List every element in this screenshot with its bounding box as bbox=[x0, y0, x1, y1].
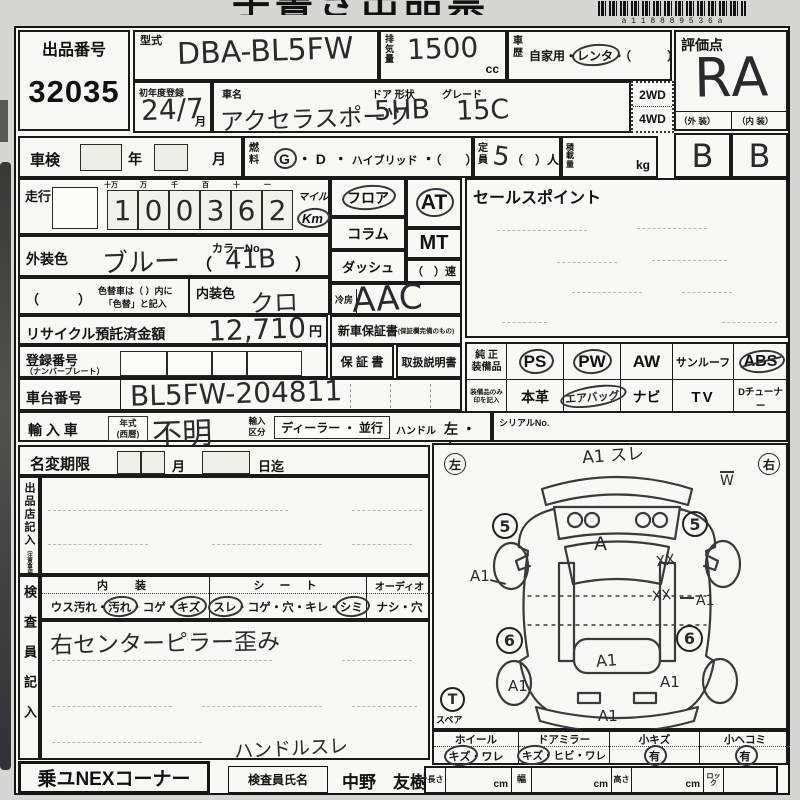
auction-sheet-scan: 手書き出品票 a 1 1 8 8 8 9 5 3 6 a 出品番号 32035 … bbox=[0, 0, 800, 800]
digit-header: 十 bbox=[233, 182, 240, 189]
small-scratch-value-wrap: 有 bbox=[610, 747, 699, 764]
damage-rear-right: A1 bbox=[660, 673, 680, 691]
width-cell: cm bbox=[532, 768, 612, 792]
odometer-label: 走行 bbox=[25, 190, 51, 204]
mirror-col: ドアミラー キズ・ヒビ・ワレ bbox=[519, 732, 610, 763]
guide-line bbox=[390, 384, 391, 408]
fuel-options: G ・D ・ハイブリッド ・（ ） bbox=[273, 149, 477, 169]
interior-header: 内 装 bbox=[42, 577, 209, 594]
first-registration-box: 初年度登録 24/7 月 bbox=[133, 81, 212, 133]
rename-month-cell bbox=[117, 451, 141, 474]
model-code-label: 型式 bbox=[140, 36, 162, 48]
color-no-paren: （ bbox=[196, 251, 212, 275]
digit-header: 十万 bbox=[104, 182, 118, 189]
damage-rear-bumper: A1 bbox=[598, 707, 618, 725]
wheel-mark-front-left: 5 bbox=[492, 513, 518, 539]
audio-col: オーディオ ナシ・穴 bbox=[367, 577, 432, 618]
registration-cell bbox=[120, 351, 167, 376]
digit-header: 百 bbox=[202, 182, 209, 189]
corner-box: 乗ユNEXコーナー bbox=[18, 761, 210, 794]
model-code-box: 型式 DBA-BL5FW bbox=[133, 30, 379, 81]
damage-front: A1 スレ bbox=[581, 439, 644, 468]
small-dent-col: 小ヘコミ 有 bbox=[700, 732, 790, 763]
new-car-warranty-label: 新車保証書 bbox=[338, 322, 398, 339]
pen-arrow bbox=[680, 597, 694, 599]
equip-sunroof: サンルーフ bbox=[676, 354, 730, 370]
equipment-table: 純 正装備品 装備品のみ印を記入 PS PW AW サンルーフ ABS 本革 エ… bbox=[465, 342, 788, 414]
mirror-options: キズ・ヒビ・ワレ bbox=[519, 747, 609, 764]
auction-number-box: 出品番号 32035 bbox=[18, 30, 130, 131]
odometer-digit: 6 bbox=[238, 194, 256, 227]
equip-pw: PW bbox=[578, 352, 605, 372]
wheel-mark-rear-left: 6 bbox=[496, 627, 523, 654]
rule-line bbox=[342, 660, 412, 661]
displacement-value: 1500 bbox=[406, 31, 478, 66]
lock-cell bbox=[724, 768, 776, 792]
displacement-box: 排気量 1500 cc bbox=[379, 30, 507, 81]
at-option: AT bbox=[421, 191, 447, 215]
car-name-box: 車名 ドア 形状 グレード アクセラスポーツ 5HB 15C bbox=[212, 81, 631, 133]
seller-section-label-box: 出品店記入 （注意事項） bbox=[18, 476, 40, 575]
serial-box: シリアルNo. bbox=[492, 411, 788, 442]
equip-abs: ABS bbox=[744, 353, 778, 371]
sales-point-box: セールスポイント bbox=[465, 178, 788, 338]
equip-airbag: エアバッグ bbox=[564, 387, 620, 407]
load-unit: kg bbox=[636, 158, 650, 172]
import-box: 輸 入 車 年式(西暦) 不明 輸入区分 ディーラー ・ 並行 ハンドル 左 ・… bbox=[18, 411, 492, 442]
damage-xx-1: XX bbox=[655, 552, 676, 571]
equip-leather: 本革 bbox=[521, 387, 549, 407]
color-change-paren: （ ） bbox=[26, 289, 91, 308]
wheel-header: ホイール bbox=[434, 732, 518, 747]
equip-ps: PS bbox=[524, 352, 547, 372]
exterior-grade-value: B bbox=[692, 137, 714, 175]
rename-month-cell bbox=[141, 451, 165, 474]
rename-label: 名変期限 bbox=[30, 453, 90, 474]
small-scratch-value: 有 bbox=[649, 748, 660, 764]
displacement-unit: cc bbox=[486, 62, 499, 76]
odometer-digit: 1 bbox=[114, 194, 132, 227]
color-no-paren: ） bbox=[295, 251, 311, 275]
rule-line bbox=[52, 706, 172, 707]
equip-aw: AW bbox=[633, 352, 660, 372]
load-label: 積載量 bbox=[566, 144, 576, 169]
spare-label: スペア bbox=[436, 713, 462, 726]
wheel-mark-rear-right: 6 bbox=[676, 625, 703, 652]
auction-number-label: 出品番号 bbox=[20, 36, 128, 60]
exterior-grade-box: B bbox=[674, 133, 731, 178]
spare-tire-mark: T bbox=[440, 687, 465, 712]
shift-dash: ダッシュ bbox=[342, 257, 394, 276]
mt-cell: MT bbox=[406, 228, 462, 259]
damage-w-mark: W bbox=[720, 471, 734, 489]
rule-line bbox=[352, 544, 412, 545]
drive-4wd: 4WD bbox=[633, 107, 672, 131]
damage-rear-left: A1 bbox=[508, 677, 528, 695]
fuel-label: 燃料 bbox=[249, 143, 260, 167]
damage-right-side: A1 bbox=[696, 593, 714, 609]
inspector-name-label: 検査員氏名 bbox=[248, 771, 308, 788]
car-history-options: 自家用・レンタ・（ ） bbox=[529, 47, 679, 64]
odometer-digit: 0 bbox=[176, 194, 194, 227]
car-history-label: 車歴 bbox=[513, 36, 524, 59]
mirror-kizu: キズ bbox=[522, 748, 543, 763]
import-label: 輸 入 車 bbox=[28, 420, 78, 440]
seat-opt-sure: スレ bbox=[213, 599, 236, 615]
recycle-unit: 円 bbox=[309, 321, 322, 340]
exterior-grade-label: （外 装） bbox=[676, 111, 732, 129]
handle-label: ハンドル bbox=[396, 422, 436, 437]
registration-box: 登録番号 （ナンバープレート） bbox=[18, 345, 328, 378]
fuel-box: 燃料 G ・D ・ハイブリッド ・（ ） bbox=[243, 136, 473, 178]
interior-grade-label: （内 装） bbox=[732, 111, 786, 129]
color-no-value: 41B bbox=[224, 244, 276, 276]
capacity-suffix: （ ）人 bbox=[511, 151, 559, 168]
digit-header: 一 bbox=[264, 182, 271, 189]
chassis-box: 車台番号 BL5FW-204811 bbox=[18, 378, 462, 411]
exterior-color-value: ブルー bbox=[101, 241, 180, 281]
exterior-color-box: 外装色 ブルー カラーNo. （ 41B ） bbox=[18, 235, 330, 277]
form-title-text: 手書き出品票 bbox=[232, 0, 490, 15]
equipment-note: 装備品のみ印を記入 bbox=[467, 380, 507, 414]
warranty-book-cell: 保 証 書 bbox=[330, 345, 394, 378]
at-cell: AT bbox=[406, 178, 462, 228]
small-dent-header: 小ヘコミ bbox=[700, 732, 790, 747]
equip-tv: TV bbox=[691, 389, 714, 406]
equip-dtuner: Dチューナー (純正・社外含む) bbox=[734, 380, 787, 414]
odometer-digit: 0 bbox=[145, 194, 163, 227]
inspector-name-label-box: 検査員氏名 bbox=[228, 766, 328, 793]
small-dent-value-wrap: 有 bbox=[700, 747, 790, 764]
first-registration-unit: 月 bbox=[195, 113, 206, 129]
small-scratch-header: 小キズ bbox=[610, 732, 699, 747]
seat-options: スレ・コゲ・穴・キレ・シミ bbox=[210, 594, 366, 620]
rule-line bbox=[52, 742, 202, 743]
seat-header: シ ー ト bbox=[210, 577, 366, 594]
shift-floor-cell: フロア bbox=[330, 178, 406, 217]
damage-xx-2: XX bbox=[651, 587, 672, 605]
shaken-label: 車検 bbox=[30, 149, 60, 170]
noise-line bbox=[572, 292, 642, 293]
capacity-value: 5 bbox=[491, 141, 512, 173]
fuel-g-option: G bbox=[279, 151, 290, 167]
inspector-note-1: 右センターピラー歪み bbox=[50, 622, 281, 660]
capacity-label: 定員 bbox=[478, 143, 489, 167]
load-box: 積載量 kg bbox=[561, 136, 658, 178]
new-car-warranty-cell: 新車保証書(保証欄完備のもの) bbox=[330, 315, 462, 345]
inspector-name: 中野 友樹 bbox=[342, 768, 427, 793]
noise-line bbox=[637, 228, 707, 229]
scan-artifact bbox=[0, 162, 11, 770]
digit-header: 千 bbox=[171, 182, 178, 189]
width-label: 幅 bbox=[512, 768, 532, 792]
registration-cell bbox=[212, 351, 247, 376]
small-dent-value: 有 bbox=[740, 748, 751, 764]
shaken-month-cell bbox=[154, 144, 188, 171]
odometer-box: 走行 十万 万 千 百 十 一 1 0 0 3 6 2 , マイル Km bbox=[18, 178, 330, 235]
chassis-value: BL5FW-204811 bbox=[130, 374, 343, 413]
damage-center: A1 bbox=[595, 650, 618, 671]
rule-line bbox=[212, 544, 322, 545]
rule-line bbox=[48, 544, 148, 545]
sales-point-label: セールスポイント bbox=[473, 184, 601, 208]
mirror-header: ドアミラー bbox=[519, 732, 609, 747]
noise-line bbox=[497, 230, 587, 231]
seat-opt-shimi: シミ bbox=[340, 599, 363, 615]
equip-navi: ナビ bbox=[633, 387, 661, 407]
auction-number: 32035 bbox=[20, 74, 128, 110]
equipment-label: 純 正装備品 bbox=[467, 344, 507, 380]
barcode bbox=[598, 1, 746, 16]
divider bbox=[120, 380, 121, 409]
corner-label: 乗ユNEXコーナー bbox=[37, 764, 190, 791]
height-cell: cm bbox=[632, 768, 704, 792]
history-rental-option: レンタ bbox=[577, 47, 613, 64]
import-kubun-label: 輸入区分 bbox=[242, 416, 272, 437]
rule-line bbox=[48, 510, 288, 511]
seat-col: シ ー ト スレ・コゲ・穴・キレ・シミ bbox=[210, 577, 367, 618]
inspector-note-2: ハンドルスレ bbox=[233, 731, 348, 764]
drive-2wd: 2WD bbox=[633, 83, 672, 107]
height-label: 高さ bbox=[612, 768, 632, 792]
displacement-label: 排気量 bbox=[385, 35, 395, 65]
interior-options: ウス汚れ・汚れ・コゲ・キズ bbox=[42, 594, 209, 620]
noise-line bbox=[557, 262, 617, 263]
rule-line bbox=[52, 660, 272, 661]
seller-vertical-label: 出品店記入 bbox=[21, 482, 37, 547]
grade-value: RA bbox=[693, 45, 770, 109]
interior-color-label: 内装色 bbox=[196, 283, 235, 302]
shaken-year-label: 年 bbox=[128, 149, 142, 169]
inspector-vertical-label: 検査員記入 bbox=[20, 585, 39, 735]
divider bbox=[188, 279, 190, 313]
trim-value: 15C bbox=[455, 94, 509, 127]
scan-artifact-2 bbox=[0, 100, 8, 142]
seller-notes-area bbox=[40, 476, 430, 575]
mile-label: マイル bbox=[298, 188, 328, 203]
guide-line bbox=[350, 384, 351, 408]
interior-grade-box: B bbox=[731, 133, 788, 178]
serial-label: シリアルNo. bbox=[499, 416, 549, 429]
inspector-notes-area: 右センターピラー歪み ハンドルスレ bbox=[40, 620, 430, 760]
noise-line bbox=[652, 260, 727, 261]
model-code-value: DBA-BL5FW bbox=[176, 31, 354, 72]
recycle-label: リサイクル預託済金額 bbox=[26, 324, 165, 344]
rename-month-label: 月 bbox=[172, 456, 185, 475]
interior-color-box: （ ） 色替車は（ ）内に 「色替」と記入 内装色 クロ bbox=[18, 277, 330, 315]
rule-line bbox=[202, 706, 322, 707]
color-change-note: 色替車は（ ）内に 「色替」と記入 bbox=[98, 285, 173, 310]
lock-label: ロック bbox=[704, 768, 724, 792]
new-car-warranty-note: (保証欄完備のもの) bbox=[398, 325, 454, 335]
registration-sublabel: （ナンバープレート） bbox=[25, 366, 105, 377]
shaken-box: 車検 年 月 bbox=[18, 136, 243, 178]
audio-options: ナシ・穴 bbox=[367, 594, 432, 620]
noise-line bbox=[502, 322, 547, 323]
chassis-label: 車台番号 bbox=[26, 388, 82, 408]
odometer-digit: 3 bbox=[207, 194, 225, 227]
length-cell: cm bbox=[446, 768, 512, 792]
shaken-year-cell bbox=[80, 144, 122, 171]
damage-diagram-box: 左 右 bbox=[432, 443, 788, 730]
car-history-box: 車歴 自家用・レンタ・（ ） bbox=[507, 30, 672, 81]
mt-option: MT bbox=[420, 232, 449, 255]
inspector-section-label-box: 検査員記入 bbox=[18, 575, 40, 760]
guide-line bbox=[430, 384, 431, 408]
exterior-color-label: 外装色 bbox=[26, 249, 68, 269]
rule-line bbox=[352, 510, 422, 511]
wheel-mark-front-right: 5 bbox=[682, 511, 708, 537]
int-opt-dirt: 汚れ bbox=[108, 599, 131, 615]
recycle-box: リサイクル預託済金額 12,710 円 bbox=[18, 315, 328, 345]
barcode-digits: a 1 1 8 8 8 9 5 3 6 a bbox=[594, 17, 750, 26]
odometer-stamp-cell bbox=[52, 187, 98, 229]
wheel-kizu: キズ bbox=[449, 748, 471, 764]
odometer-digit: 2 bbox=[269, 194, 287, 227]
rename-deadline-box: 名変期限 月 日迄 bbox=[18, 445, 430, 476]
noise-line bbox=[682, 292, 732, 293]
manual-cell: 取扱説明書 bbox=[396, 345, 462, 378]
length-label: 長さ bbox=[426, 768, 446, 792]
shift-column: コラム bbox=[347, 224, 389, 244]
rename-day-label: 日迄 bbox=[258, 456, 284, 475]
km-label: Km bbox=[302, 211, 323, 226]
shaken-month-label: 月 bbox=[212, 149, 226, 169]
car-top-view-drawing bbox=[462, 451, 762, 729]
inspection-options-table: 内 装 ウス汚れ・汚れ・コゲ・キズ シ ー ト スレ・コゲ・穴・キレ・シミ オー… bbox=[40, 575, 430, 620]
import-dealer-options: ディーラー ・ 並行 bbox=[281, 419, 383, 436]
door-shape-value: 5HB bbox=[373, 94, 430, 127]
audio-header: オーディオ bbox=[367, 577, 432, 594]
small-scratch-col: 小キズ 有 bbox=[610, 732, 700, 763]
ac-box: 冷房 AAC bbox=[330, 283, 462, 315]
digit-header: 万 bbox=[140, 182, 147, 189]
import-year-label: 年式(西暦) bbox=[108, 416, 148, 441]
grade-box: 評価点 RA （外 装） （内 装） bbox=[674, 30, 788, 131]
int-opt-kizu: キズ bbox=[177, 599, 200, 615]
registration-cell bbox=[167, 351, 212, 376]
wheel-col: ホイール キズ・ワレ bbox=[434, 732, 519, 763]
noise-line bbox=[722, 322, 777, 323]
capacity-box: 定員 5 （ ）人 bbox=[473, 136, 561, 178]
shift-floor: フロア bbox=[347, 188, 389, 208]
wheel-options: キズ・ワレ bbox=[434, 747, 518, 764]
dimensions-row: 長さ cm 幅 cm 高さ cm ロック bbox=[424, 766, 778, 794]
condition-table: ホイール キズ・ワレ ドアミラー キズ・ヒビ・ワレ 小キズ 有 小ヘコミ 有 bbox=[432, 730, 788, 765]
recycle-amount: 12,710 bbox=[207, 311, 306, 347]
drive-type-box: 2WD 4WD bbox=[631, 81, 674, 133]
registration-cell bbox=[247, 351, 302, 376]
rule-line bbox=[352, 706, 417, 707]
shift-column-cell: コラム bbox=[330, 217, 406, 250]
rename-day-cell bbox=[202, 451, 250, 474]
form-title-clipped: 手書き出品票 bbox=[232, 0, 532, 15]
car-name-label: 車名 bbox=[222, 86, 242, 101]
damage-hood: A bbox=[594, 533, 607, 555]
interior-col: 内 装 ウス汚れ・汚れ・コゲ・キズ bbox=[42, 577, 210, 618]
damage-left-side: A1 bbox=[470, 567, 490, 585]
interior-grade-value: B bbox=[749, 137, 771, 175]
